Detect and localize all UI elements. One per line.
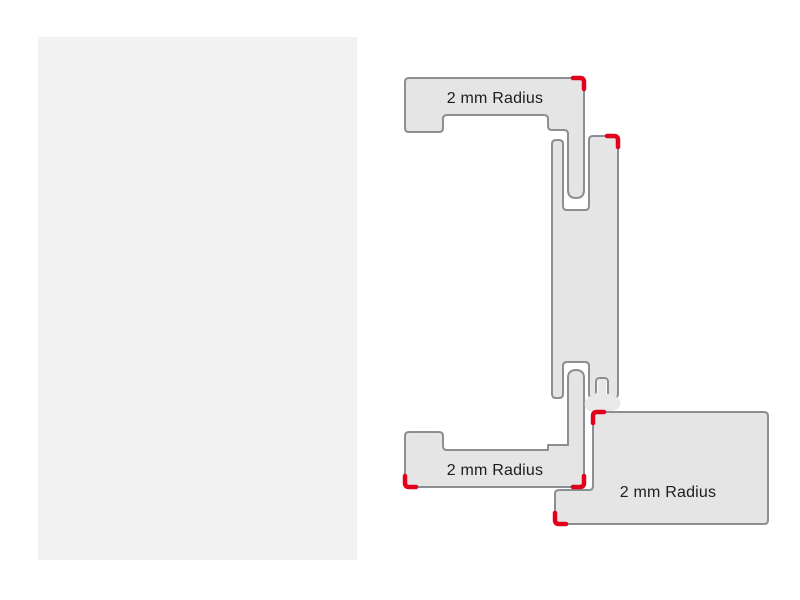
bottom-frame-radius-label: 2 mm Radius: [405, 461, 585, 480]
top-frame-radius-label: 2 mm Radius: [405, 89, 585, 108]
door-leaf-radius-label: 2 mm Radius: [578, 483, 758, 502]
door-leaf-profile: [555, 412, 768, 524]
frame-profile-diagram: 2 mm Radius 2 mm Radius 2 mm Radius: [0, 0, 800, 600]
profile-drawing: [0, 0, 800, 600]
